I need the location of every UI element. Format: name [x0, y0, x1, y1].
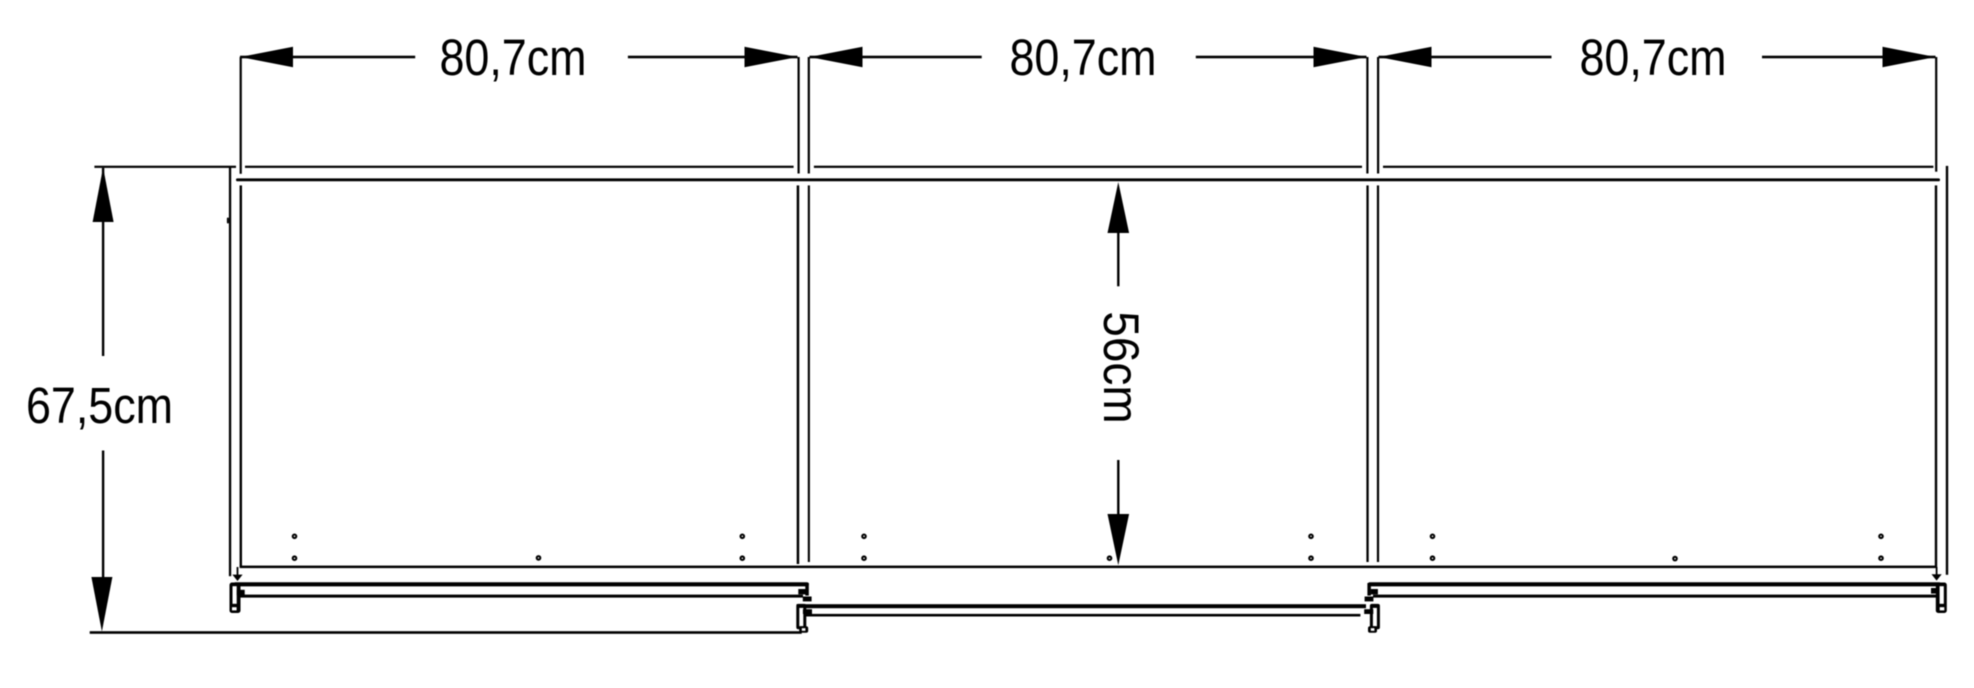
svg-text:67,5cm: 67,5cm	[26, 378, 173, 434]
svg-text:80,7cm: 80,7cm	[1579, 30, 1726, 86]
svg-text:80,7cm: 80,7cm	[439, 30, 586, 86]
svg-text:56cm: 56cm	[1093, 311, 1148, 423]
svg-text:80,7cm: 80,7cm	[1009, 30, 1156, 86]
